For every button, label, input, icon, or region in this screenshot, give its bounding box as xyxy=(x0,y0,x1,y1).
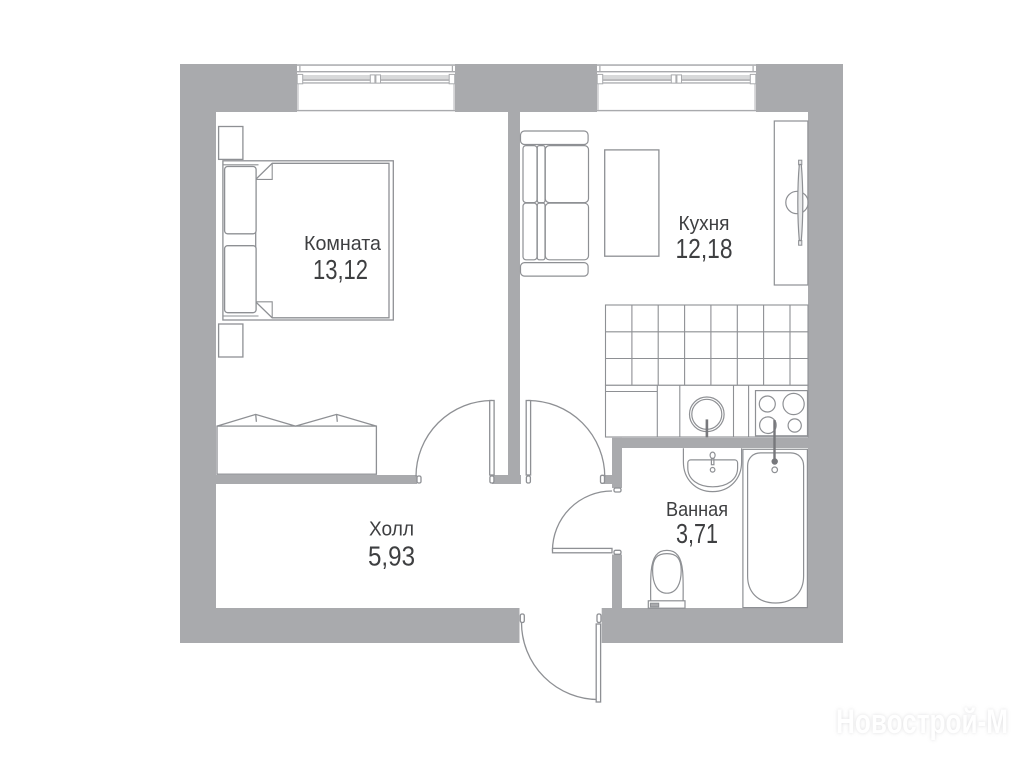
svg-text:5,93: 5,93 xyxy=(368,541,415,572)
svg-text:Кухня: Кухня xyxy=(679,212,730,235)
svg-text:Комната: Комната xyxy=(304,232,382,255)
svg-text:13,12: 13,12 xyxy=(313,254,368,285)
svg-text:12,18: 12,18 xyxy=(676,233,733,264)
svg-text:3,71: 3,71 xyxy=(676,518,718,549)
svg-text:Новострой-М: Новострой-М xyxy=(836,703,1008,741)
svg-text:Холл: Холл xyxy=(369,518,414,541)
